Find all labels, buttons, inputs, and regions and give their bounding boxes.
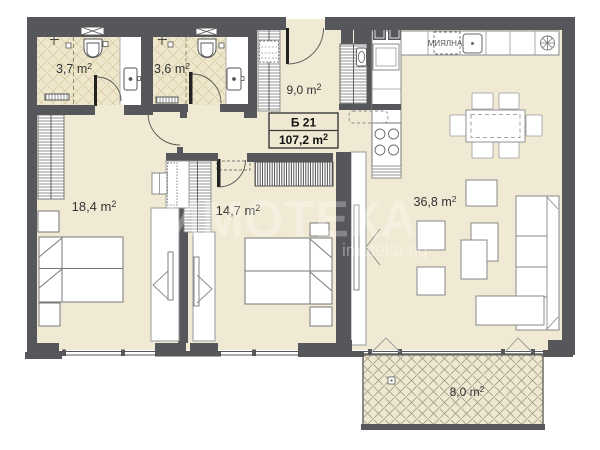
- svg-text:36,8 m2: 36,8 m2: [414, 194, 457, 209]
- svg-text:9,0 m2: 9,0 m2: [286, 82, 321, 97]
- svg-text:imoteka.bg: imoteka.bg: [342, 240, 428, 260]
- svg-text:Б 21: Б 21: [291, 116, 317, 130]
- svg-text:3,7 m2: 3,7 m2: [56, 61, 92, 76]
- svg-text:18,4 m2: 18,4 m2: [72, 199, 117, 214]
- svg-text:107,2 m2: 107,2 m2: [279, 132, 328, 147]
- svg-text:МИЯЛНА: МИЯЛНА: [428, 39, 463, 48]
- svg-text:8,0 m2: 8,0 m2: [450, 384, 485, 399]
- svg-text:3,6 m2: 3,6 m2: [154, 61, 190, 76]
- svg-text:ИМОТЕКА: ИМОТЕКА: [165, 191, 417, 248]
